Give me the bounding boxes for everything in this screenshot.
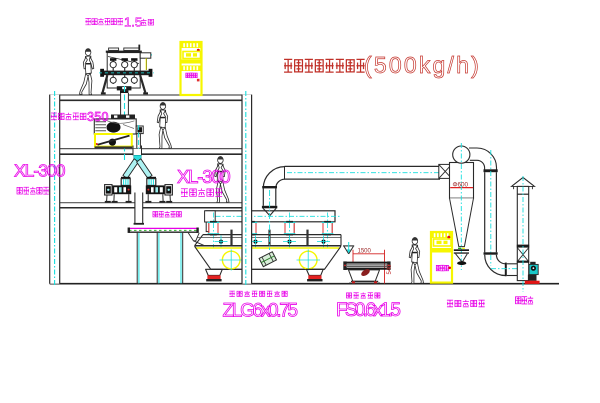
svg-text:540: 540 — [387, 264, 393, 275]
svg-text:FS0.6x1.5: FS0.6x1.5 — [336, 300, 400, 321]
svg-text:XL-300: XL-300 — [14, 161, 66, 181]
svg-text:350: 350 — [87, 110, 109, 124]
svg-text:(500kg/h): (500kg/h) — [364, 52, 481, 78]
svg-text:Φ600: Φ600 — [453, 181, 469, 188]
svg-text:1500: 1500 — [358, 248, 372, 254]
svg-text:ZLG6x0.75: ZLG6x0.75 — [223, 301, 298, 322]
svg-text:1.5: 1.5 — [124, 15, 142, 30]
svg-text:XL-300: XL-300 — [177, 166, 230, 187]
